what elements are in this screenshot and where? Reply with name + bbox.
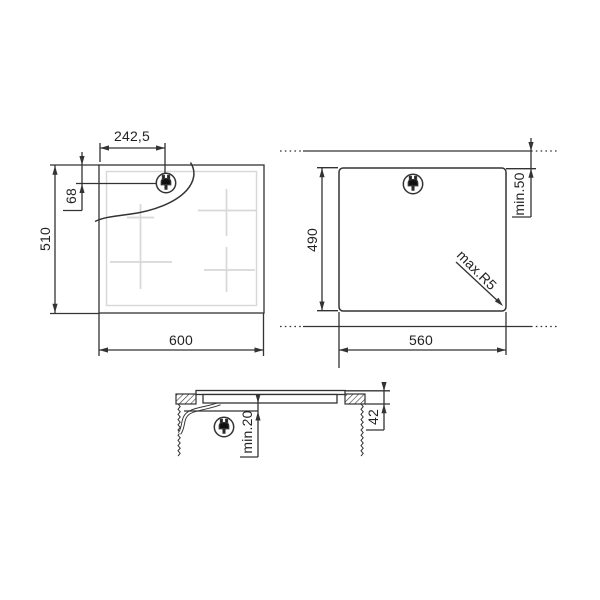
arrowhead (79, 184, 84, 193)
arrowhead (255, 412, 260, 421)
cutout-outline (339, 168, 506, 311)
dim-label-plug-offset-top: 68 (63, 188, 79, 204)
hob-outline (99, 165, 264, 313)
arrowhead (255, 347, 264, 352)
dim-label-built-in-depth: 42 (365, 409, 381, 425)
arrowhead (319, 168, 324, 177)
dim-label-underside-clearance: min.20 (239, 410, 255, 453)
cabinet-break-line-right (361, 404, 363, 456)
dim-label-cutout-depth: 490 (304, 228, 320, 252)
installation-section-view (176, 382, 390, 457)
arrowhead (100, 145, 109, 150)
dim-label-overall-width: 600 (169, 332, 193, 348)
dim-label-overall-depth: 510 (37, 227, 53, 251)
worktop-hatch-left (176, 394, 196, 404)
dim-label-rear-clearance: min.50 (511, 172, 527, 215)
arrowhead (79, 156, 84, 165)
power-plug-icon (214, 417, 233, 436)
hob-body-section (203, 395, 337, 404)
arrowhead (381, 382, 386, 391)
dimension-490 (317, 168, 338, 311)
arrowhead (528, 142, 533, 151)
arrowhead (497, 347, 506, 352)
arrowhead (99, 347, 108, 352)
hob-top-view (50, 143, 264, 356)
power-plug-icon (403, 174, 422, 193)
arrowhead (52, 166, 57, 175)
arrowhead (156, 145, 165, 150)
dim-label-cutout-width: 560 (409, 332, 433, 348)
arrowhead (319, 302, 324, 311)
dim-label-plug-offset-left: 242,5 (114, 128, 150, 144)
worktop-hatch-right (345, 394, 365, 404)
arrowhead (339, 347, 348, 352)
arrowhead (381, 404, 386, 413)
arrowhead (528, 169, 533, 178)
power-plug-icon (156, 173, 175, 192)
arrowhead (52, 304, 57, 313)
hob-installation-diagram: 242,5 68 510 600 490 min.50 max.R5 560 m… (0, 0, 600, 600)
